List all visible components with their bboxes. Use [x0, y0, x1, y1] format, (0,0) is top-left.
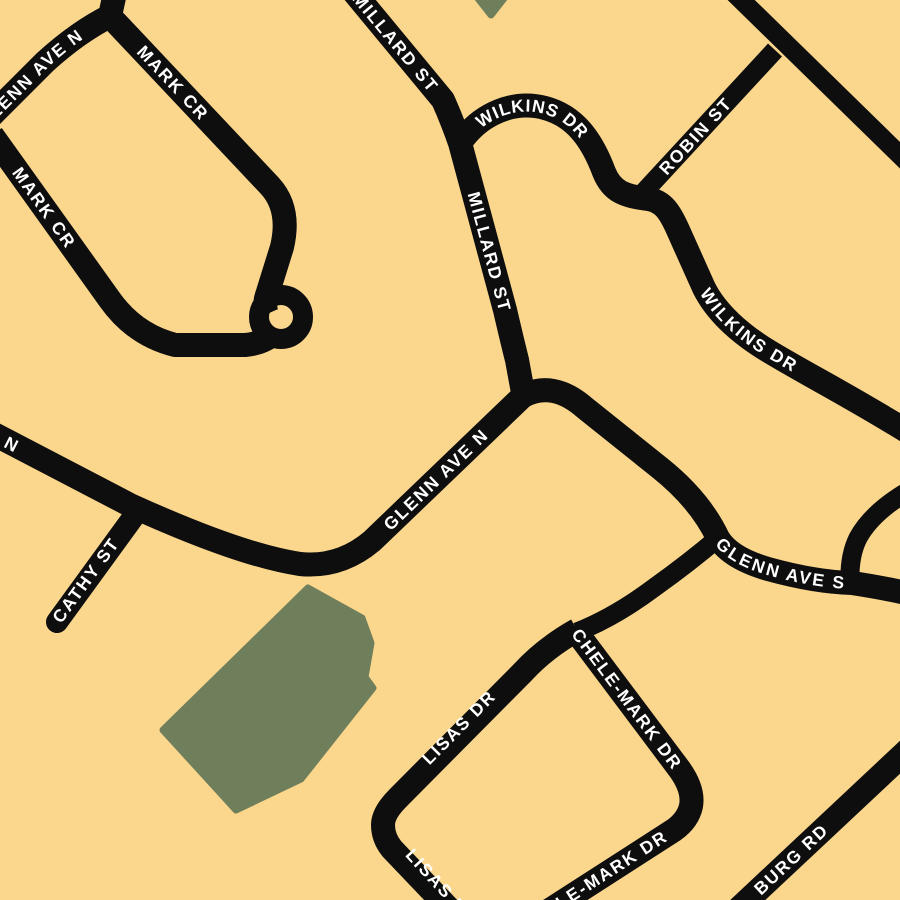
street-map: GLENN AVE NMARK CRMARK CRMILLARD STMILLA… [0, 0, 900, 900]
map-canvas: GLENN AVE NMARK CRMARK CRMILLARD STMILLA… [0, 0, 900, 900]
